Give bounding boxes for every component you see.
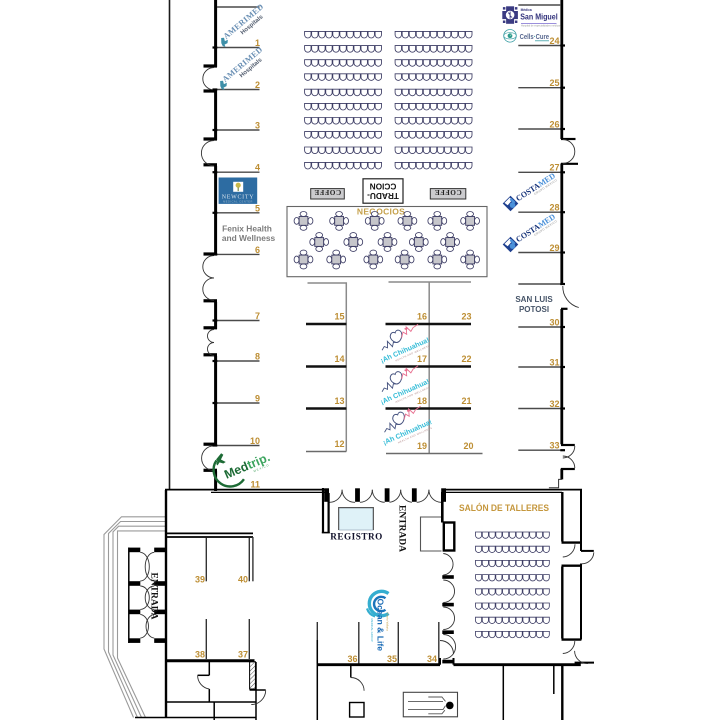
svg-text:24: 24	[549, 36, 559, 46]
svg-text:Cells·Cure: Cells·Cure	[520, 32, 550, 41]
svg-text:33: 33	[549, 441, 559, 451]
svg-text:SAN LUIS: SAN LUIS	[515, 295, 553, 304]
svg-text:18: 18	[417, 396, 427, 406]
svg-text:CCION: CCION	[370, 181, 397, 191]
svg-text:COFFE: COFFE	[434, 188, 461, 196]
svg-text:16: 16	[417, 312, 427, 322]
svg-text:COFFE: COFFE	[314, 188, 341, 196]
svg-text:31: 31	[549, 357, 559, 367]
svg-text:6: 6	[255, 245, 260, 255]
svg-text:36: 36	[347, 654, 357, 664]
svg-text:14: 14	[334, 354, 344, 364]
svg-text:25: 25	[549, 78, 559, 88]
svg-text:Ocean & Life: Ocean & Life	[376, 599, 386, 652]
svg-text:REGISTRO: REGISTRO	[330, 532, 383, 542]
svg-text:37: 37	[238, 650, 248, 660]
svg-text:3: 3	[255, 121, 260, 131]
svg-text:23: 23	[461, 312, 471, 322]
svg-text:39: 39	[195, 575, 205, 585]
svg-text:26: 26	[549, 119, 559, 129]
svg-text:Hospital de especialidades méd: Hospital de especialidades médicas	[521, 24, 561, 27]
svg-text:19: 19	[417, 441, 427, 451]
svg-text:7: 7	[255, 311, 260, 321]
svg-text:10: 10	[250, 436, 260, 446]
svg-text:13: 13	[334, 396, 344, 406]
svg-text:San Miguel: San Miguel	[520, 13, 558, 22]
svg-text:NEGOCIOS: NEGOCIOS	[357, 207, 405, 217]
svg-text:22: 22	[461, 354, 471, 364]
svg-text:Médica: Médica	[521, 8, 532, 12]
svg-text:4: 4	[255, 163, 260, 173]
svg-text:17: 17	[417, 354, 427, 364]
svg-text:2: 2	[255, 80, 260, 90]
svg-text:ENTRADA: ENTRADA	[397, 505, 407, 552]
svg-text:8: 8	[255, 352, 260, 362]
svg-text:21: 21	[461, 396, 471, 406]
svg-text:15: 15	[334, 312, 344, 322]
svg-text:38: 38	[195, 650, 205, 660]
svg-text:20: 20	[463, 441, 473, 451]
svg-text:30: 30	[549, 317, 559, 327]
svg-text:Puerto Vallarta: Puerto Vallarta	[386, 613, 390, 632]
svg-text:28: 28	[549, 203, 559, 213]
svg-text:34: 34	[427, 654, 437, 664]
svg-text:29: 29	[549, 243, 559, 253]
svg-text:40: 40	[238, 575, 248, 585]
svg-text:ENTRADA: ENTRADA	[149, 573, 159, 620]
svg-text:5: 5	[255, 203, 260, 213]
svg-text:MEDICAL CENTER: MEDICAL CENTER	[223, 199, 253, 203]
svg-text:9: 9	[255, 394, 260, 404]
svg-text:TRADU-: TRADU-	[367, 191, 399, 201]
svg-text:32: 32	[549, 399, 559, 409]
svg-text:and Wellness: and Wellness	[222, 233, 276, 243]
svg-text:35: 35	[387, 654, 397, 664]
svg-text:12: 12	[334, 439, 344, 449]
svg-text:SALÓN DE TALLERES: SALÓN DE TALLERES	[459, 502, 549, 513]
svg-text:MEDICAL GROUP: MEDICAL GROUP	[370, 619, 374, 642]
svg-text:POTOSI: POTOSI	[519, 305, 549, 314]
svg-text:11: 11	[250, 480, 260, 490]
